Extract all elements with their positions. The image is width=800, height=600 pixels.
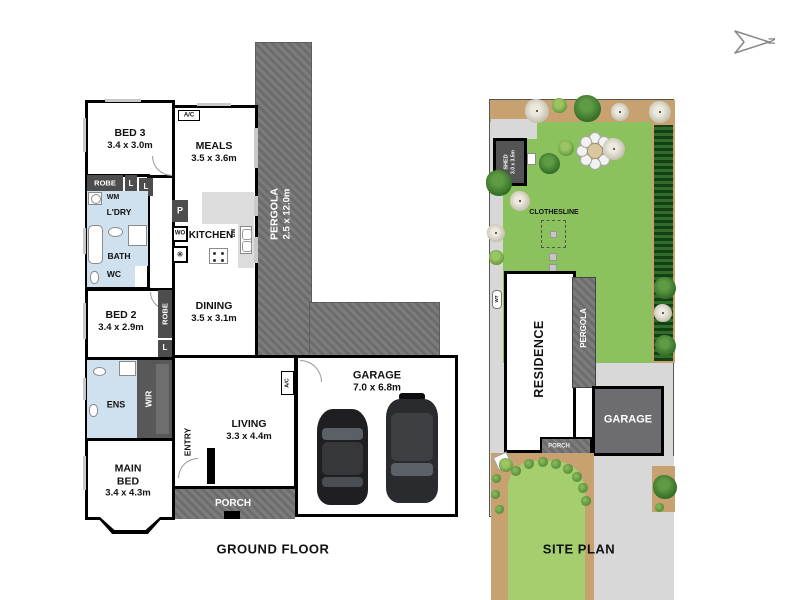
tree-icon xyxy=(525,99,549,123)
window xyxy=(83,228,86,254)
site-shed-door xyxy=(527,153,536,165)
bathtub-icon xyxy=(88,225,103,264)
window xyxy=(254,237,258,263)
window xyxy=(105,99,141,102)
tree-icon xyxy=(510,191,530,211)
room-name: LIVING xyxy=(226,418,271,431)
room-dims: 3.4 x 4.3m xyxy=(105,488,151,499)
bath-label: BATH xyxy=(108,251,131,261)
car-roof xyxy=(391,413,433,461)
room-dims: 7.0 x 6.8m xyxy=(353,383,401,395)
room-name: GARAGE xyxy=(353,369,401,382)
room-dims: 3.5 x 3.6m xyxy=(191,153,236,164)
room-name: PERGOLA xyxy=(269,188,282,240)
tree-icon xyxy=(574,95,601,122)
site-path-top-left xyxy=(491,119,537,139)
tree-icon xyxy=(486,170,512,196)
room-label-porch: PORCH xyxy=(215,498,251,510)
linen-label: L xyxy=(129,179,134,189)
basin-icon xyxy=(108,227,123,237)
linen-label: L xyxy=(163,343,168,353)
ac-label: A/C xyxy=(285,378,292,387)
room-label-main-bed: MAIN BED 3.4 x 4.3m xyxy=(105,463,151,500)
room-label-living: LIVING 3.3 x 4.4m xyxy=(226,418,271,442)
ens-toilet-icon xyxy=(89,404,98,417)
car-rear-window xyxy=(322,477,363,487)
porch-pillar xyxy=(224,511,240,519)
site-hedge xyxy=(654,125,673,361)
tree-icon xyxy=(649,101,671,123)
room-label-garage: GARAGE 7.0 x 6.8m xyxy=(353,369,401,394)
site-residence-label: RESIDENCE xyxy=(532,320,548,397)
room-label-kitchen: KITCHEN xyxy=(189,230,233,242)
car-windshield xyxy=(391,463,433,476)
site-garage-label: GARAGE xyxy=(604,413,652,426)
tree-icon xyxy=(654,304,672,322)
site-lot: SHED 3.0 x 3.5m CLOTHESLINE RESIDENCE PE… xyxy=(489,99,674,517)
window xyxy=(83,456,86,490)
room-label-bed2: BED 2 3.4 x 2.9m xyxy=(98,309,143,333)
robe-label: ROBE xyxy=(160,303,169,325)
room-dims: 3.5 x 3.1m xyxy=(191,313,236,324)
sink-bowl xyxy=(242,241,252,252)
ground-floor-caption: GROUND FLOOR xyxy=(217,542,330,557)
ens-label: ENS xyxy=(107,400,126,411)
tree-icon xyxy=(489,250,504,265)
table-top xyxy=(587,143,603,159)
toilet-icon xyxy=(90,271,99,284)
wc-label: WC xyxy=(107,269,121,279)
ens-shower-icon xyxy=(119,361,136,376)
window xyxy=(83,378,86,400)
room-name: BED 3 xyxy=(107,127,152,140)
room-label-meals: MEALS 3.5 x 3.6m xyxy=(191,140,236,164)
tree-icon xyxy=(654,277,676,299)
room-label-pergola: PERGOLA 2.5 x 12.0m xyxy=(269,188,294,240)
room-dims: 3.4 x 3.0m xyxy=(107,140,152,151)
room-dims: 3.3 x 4.4m xyxy=(226,431,271,442)
shower-icon xyxy=(128,225,147,246)
car-roof xyxy=(322,442,363,475)
car-windshield xyxy=(322,428,363,440)
site-pergola-label: PERGOLA xyxy=(579,308,589,348)
window xyxy=(197,103,231,106)
room-name: MEALS xyxy=(191,140,236,153)
site-shed-dims: 3.0 x 3.5m xyxy=(510,150,516,174)
fridge-symbol: ✳ xyxy=(177,250,184,260)
tree-icon xyxy=(655,335,676,356)
room-dims: 3.4 x 2.9m xyxy=(98,322,143,333)
room-label-bed3: BED 3 3.4 x 3.0m xyxy=(107,127,152,151)
site-porch-label: PORCH xyxy=(548,443,570,450)
stepping-stone xyxy=(549,253,557,261)
washing-machine-drum xyxy=(91,194,101,204)
tree-icon xyxy=(558,140,574,156)
tree-icon xyxy=(603,138,625,160)
robe-label: ROBE xyxy=(94,179,116,188)
tree-icon xyxy=(552,98,567,113)
window xyxy=(83,118,86,152)
site-water-tank-label: WT xyxy=(494,296,500,303)
site-shed-name: SHED xyxy=(503,150,510,174)
wir-label: WIR xyxy=(144,391,155,408)
pantry-label: P xyxy=(177,206,183,217)
ens-basin-icon xyxy=(93,367,106,376)
cooktop-burner xyxy=(213,252,216,255)
wir-shelf xyxy=(156,364,169,434)
room-label-entry: ENTRY xyxy=(183,428,194,457)
room-dims: 2.5 x 12.0m xyxy=(282,188,294,240)
tree-icon xyxy=(539,153,560,174)
room-label-dining: DINING 3.5 x 3.1m xyxy=(191,300,236,324)
window xyxy=(254,128,258,168)
stepping-stone xyxy=(550,231,557,238)
kitchen-bench xyxy=(202,192,254,224)
window xyxy=(83,303,86,339)
site-shed-label: SHED 3.0 x 3.5m xyxy=(503,150,516,174)
room-name: MAIN BED xyxy=(105,463,151,488)
site-clothesline-label: CLOTHESLINE xyxy=(529,209,578,217)
tree-icon xyxy=(611,103,629,121)
wall-oven-label: WO xyxy=(175,230,185,237)
wm-label: WM xyxy=(107,194,119,202)
entry-wall-stub xyxy=(207,448,215,484)
floor-plan-canvas: PERGOLA 2.5 x 12.0m PORCH ROBE L L WM L'… xyxy=(0,0,800,600)
pergola-area-horizontal xyxy=(309,302,440,357)
tree-icon xyxy=(653,475,677,499)
site-plan-caption: SITE PLAN xyxy=(543,542,615,557)
room-name: BED 2 xyxy=(98,309,143,322)
tree-icon xyxy=(487,224,505,242)
north-label: N xyxy=(766,38,776,45)
site-lawn-front xyxy=(508,461,585,600)
ac-label: A/C xyxy=(184,112,194,119)
sink-bowl xyxy=(242,229,252,240)
cooktop-icon xyxy=(209,248,228,264)
room-name: DINING xyxy=(191,300,236,313)
window xyxy=(254,196,258,216)
ldry-label: L'DRY xyxy=(107,207,132,217)
